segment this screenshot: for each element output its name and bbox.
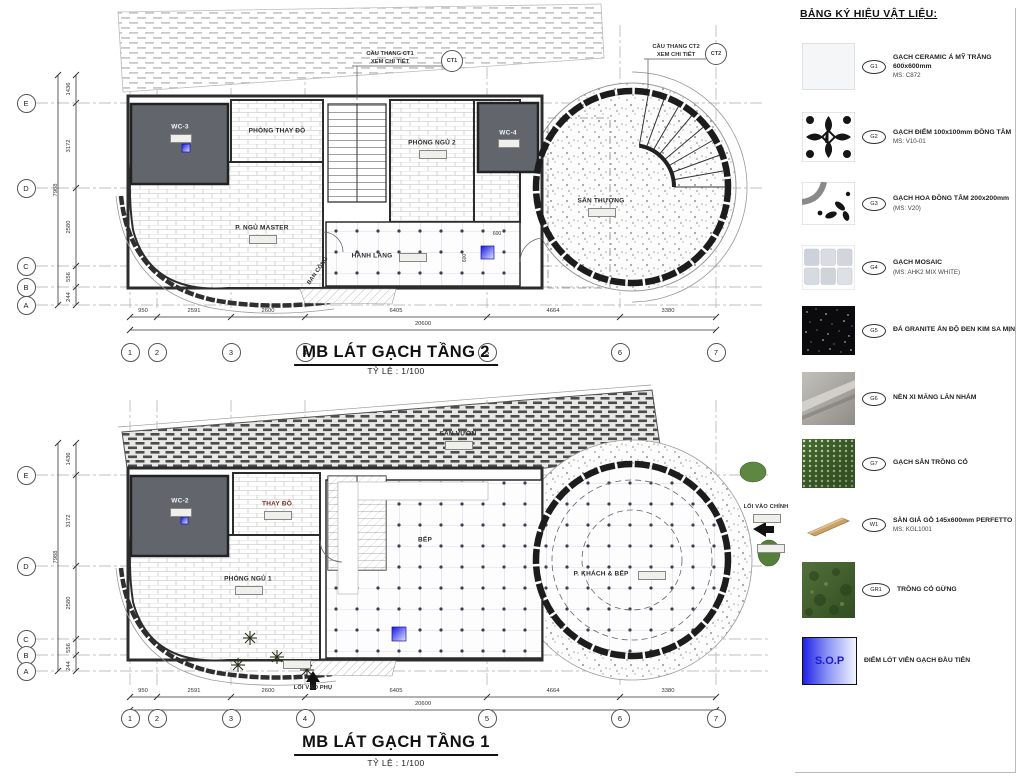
dim-v: 3172 <box>66 140 72 153</box>
legend-item-w1: W1 SÀN GIẢ GỖ 145x600mm PERFETTO MS: KGL… <box>802 508 1018 542</box>
dim-v: 244 <box>66 292 72 302</box>
level-tag <box>445 441 473 450</box>
level-tag <box>588 208 616 217</box>
dim-h: 2600 <box>262 688 275 694</box>
legend-swatch-concrete <box>802 372 855 425</box>
dim-h: 2600 <box>262 308 275 314</box>
room-label-wc2: WC-2 <box>171 498 188 505</box>
stair-tag-ct1: CT1 <box>441 50 463 72</box>
grid-bubble-7: 7 <box>707 709 726 728</box>
legend-item-g7: G7 GẠCH SÂN TRỒNG CỎ <box>802 439 1018 488</box>
plan2-roof-strip <box>118 4 604 92</box>
plan2-scale: TỶ LỆ : 1/100 <box>367 366 424 376</box>
dim-v: 2580 <box>66 221 72 234</box>
level-tag <box>170 134 192 143</box>
legend-label: ĐIỂM LÓT VIÊN GẠCH ĐẦU TIÊN <box>864 657 1018 665</box>
room-label-phong-ngu-1: PHÒNG NGỦ 1 <box>224 576 272 583</box>
legend-item-g2: G2 GẠCH ĐIỂM 100x100mm ĐỒNG TÂM MS: V10-… <box>802 112 1018 162</box>
legend-tag-g5: G5 <box>862 324 886 338</box>
grid-bubble-A: A <box>17 662 36 681</box>
dim-v: 1436 <box>66 453 72 466</box>
grid-bubble-6: 6 <box>611 343 630 362</box>
level-tag <box>757 544 785 553</box>
grid-bubble-1: 1 <box>121 709 140 728</box>
legend-sub: (MS: AHK2 MIX WHITE) <box>893 269 1018 276</box>
note-ct2-sub: XEM CHI TIẾT <box>657 52 695 58</box>
legend-tag-g2: G2 <box>862 130 886 144</box>
grid-bubble-C: C <box>17 257 36 276</box>
legend-swatch-wood-plank <box>802 510 855 540</box>
grid-bubble-4: 4 <box>296 709 315 728</box>
level-tag <box>638 571 666 580</box>
legend-item-gr1: GR1 TRỒNG CỎ GỪNG <box>802 562 1018 618</box>
grid-bubble-E: E <box>17 466 36 485</box>
dim-h: 4664 <box>547 688 560 694</box>
grid-bubble-D: D <box>17 557 36 576</box>
room-label-wc3: WC-3 <box>171 124 188 131</box>
plan1-title: MB LÁT GẠCH TẦNG 1 <box>294 733 498 756</box>
room-label-bep: BẾP <box>418 537 432 544</box>
plan1-scale: TỶ LỆ : 1/100 <box>367 758 424 768</box>
room-label-thay-do: THAY ĐỒ <box>262 501 292 508</box>
grid-bubble-6: 6 <box>611 709 630 728</box>
legend-tag-w1: W1 <box>862 518 886 532</box>
level-tag <box>235 586 263 595</box>
dim-h: 6405 <box>390 308 403 314</box>
room-label-phong-thay-do: PHÒNG THAY ĐỒ <box>249 128 306 135</box>
legend-sub: (MS: V20) <box>893 205 1018 212</box>
grid-bubble-D: D <box>17 179 36 198</box>
grid-bubble-5: 5 <box>478 709 497 728</box>
grid-bubble-A: A <box>17 296 36 315</box>
dim-v: 556 <box>66 272 72 282</box>
legend-sub: MS: V10-01 <box>893 138 1018 145</box>
level-tag <box>753 514 781 523</box>
legend-swatch-bw-floral-tile <box>802 182 855 225</box>
legend-label: GẠCH MOSAIC <box>893 259 1018 267</box>
legend-sub: MS: KGL1001 <box>893 526 1018 533</box>
legend-sub: MS: C872 <box>893 72 1018 79</box>
legend-swatch-grass-paver <box>802 439 855 488</box>
grid-bubble-3: 3 <box>222 343 241 362</box>
legend-swatch-mosaic <box>802 245 855 290</box>
room-label-wc4: WC-4 <box>499 130 516 137</box>
level-tag <box>399 253 427 262</box>
stair-tag-ct2: CT2 <box>705 43 727 65</box>
note-cau-thang-ct1: CẦU THANG CT1 <box>366 51 413 57</box>
legend-swatch-bw-ornate-tile <box>802 112 855 162</box>
grid-bubble-2: 2 <box>148 343 167 362</box>
room-label-hanh-lang: HÀNH LANG <box>352 253 393 260</box>
label-loi-vao-chinh: LỐI VÀO CHÍNH <box>744 504 789 510</box>
legend-item-g4: G4 GẠCH MOSAIC (MS: AHK2 MIX WHITE) <box>802 245 1018 290</box>
legend-item-g1: G1 GẠCH CERAMIC Á MỸ TRẮNG 600x600mm MS:… <box>802 43 1018 90</box>
dim-h: 2591 <box>188 308 201 314</box>
room-label-khach-bep: P. KHÁCH & BẾP <box>573 571 628 578</box>
dim-h: 950 <box>138 308 148 314</box>
legend-item-g3: G3 GẠCH HOA ĐỒNG TÂM 200x200mm (MS: V20) <box>802 182 1018 225</box>
legend-label: GẠCH SÂN TRỒNG CỎ <box>893 459 1018 467</box>
dim-v: 1436 <box>66 83 72 96</box>
legend-label: ĐÁ GRANITE ẤN ĐỘ ĐEN KIM SA MỊN <box>893 326 1018 334</box>
level-tag <box>283 660 311 669</box>
dim-600: 600 <box>462 254 468 262</box>
legend-tag-g3: G3 <box>862 197 886 211</box>
legend-item-sop: S.O.P ĐIỂM LÓT VIÊN GẠCH ĐẦU TIÊN <box>802 636 1018 686</box>
dim-v: 2580 <box>66 597 72 610</box>
legend-swatch-grass <box>802 562 855 618</box>
level-tag <box>419 150 447 159</box>
legend-swatch-white-ceramic <box>802 43 855 90</box>
room-label-phong-ngu-2: PHÒNG NGỦ 2 <box>408 140 456 147</box>
dim-v: 244 <box>66 661 72 671</box>
grid-bubble-B: B <box>17 278 36 297</box>
grid-bubble-1: 1 <box>121 343 140 362</box>
dim-h-total: 20600 <box>415 701 431 707</box>
legend-title: BẢNG KÝ HIỆU VẬT LIỆU: <box>800 8 937 20</box>
legend-label: GẠCH CERAMIC Á MỸ TRẮNG 600x600mm <box>893 54 1018 71</box>
grid-bubble-2: 2 <box>148 709 167 728</box>
dim-v-total: 7988 <box>53 184 59 197</box>
legend-tag-g6: G6 <box>862 392 886 406</box>
note-ct1-sub: XEM CHI TIẾT <box>371 59 409 65</box>
legend-swatch-sop: S.O.P <box>802 637 857 685</box>
level-tag <box>264 511 292 520</box>
dim-v-total: 7988 <box>53 551 59 564</box>
legend-label: SÀN GIẢ GỖ 145x600mm PERFETTO <box>893 517 1018 525</box>
grid-bubble-7: 7 <box>707 343 726 362</box>
sheet-border-bottom <box>795 772 1016 773</box>
dim-h: 3380 <box>662 688 675 694</box>
grid-bubble-3: 3 <box>222 709 241 728</box>
dim-h: 3380 <box>662 308 675 314</box>
legend-label: GẠCH HOA ĐỒNG TÂM 200x200mm <box>893 195 1018 203</box>
level-tag <box>249 235 277 244</box>
dim-v: 556 <box>66 643 72 653</box>
legend-swatch-black-granite <box>802 306 855 355</box>
sheet-border-right <box>1015 8 1016 773</box>
dim-600: 600 <box>493 231 501 237</box>
legend-tag-g4: G4 <box>862 261 886 275</box>
plan2-title: MB LÁT GẠCH TẦNG 2 <box>294 343 498 366</box>
legend-tag-gr1: GR1 <box>862 583 890 597</box>
dim-h: 6405 <box>390 688 403 694</box>
level-tag <box>498 139 520 148</box>
dim-h: 2591 <box>188 688 201 694</box>
legend-tag-g7: G7 <box>862 457 886 471</box>
dim-h-total: 20600 <box>415 321 431 327</box>
label-loi-vao-phu: LỐI VÀO PHỤ <box>294 685 333 691</box>
room-label-ngu-master: P. NGỦ MASTER <box>235 225 288 232</box>
drawing-sheet: WC-3 PHÒNG THAY ĐỒ P. NGỦ MASTER PHÒNG N… <box>0 0 1024 777</box>
dim-h: 4664 <box>547 308 560 314</box>
plan2-building <box>128 96 544 289</box>
legend-tag-g1: G1 <box>862 60 886 74</box>
legend-item-g5: G5 ĐÁ GRANITE ẤN ĐỘ ĐEN KIM SA MỊN <box>802 306 1018 355</box>
legend-item-g6: G6 NỀN XI MĂNG LĂN NHÁM <box>802 372 1018 425</box>
note-cau-thang-ct2: CẦU THANG CT2 <box>652 44 699 50</box>
level-tag <box>170 508 192 517</box>
legend-label: NỀN XI MĂNG LĂN NHÁM <box>893 394 1018 402</box>
legend-label: GẠCH ĐIỂM 100x100mm ĐỒNG TÂM <box>893 129 1018 137</box>
dim-h: 950 <box>138 688 148 694</box>
dim-v: 3172 <box>66 515 72 528</box>
room-label-san-vuon: SÂN VƯỜN <box>439 431 476 438</box>
room-label-san-thuong: SÂN THƯỢNG <box>578 198 625 205</box>
legend-label: TRỒNG CỎ GỪNG <box>897 586 1018 594</box>
grid-bubble-E: E <box>17 94 36 113</box>
